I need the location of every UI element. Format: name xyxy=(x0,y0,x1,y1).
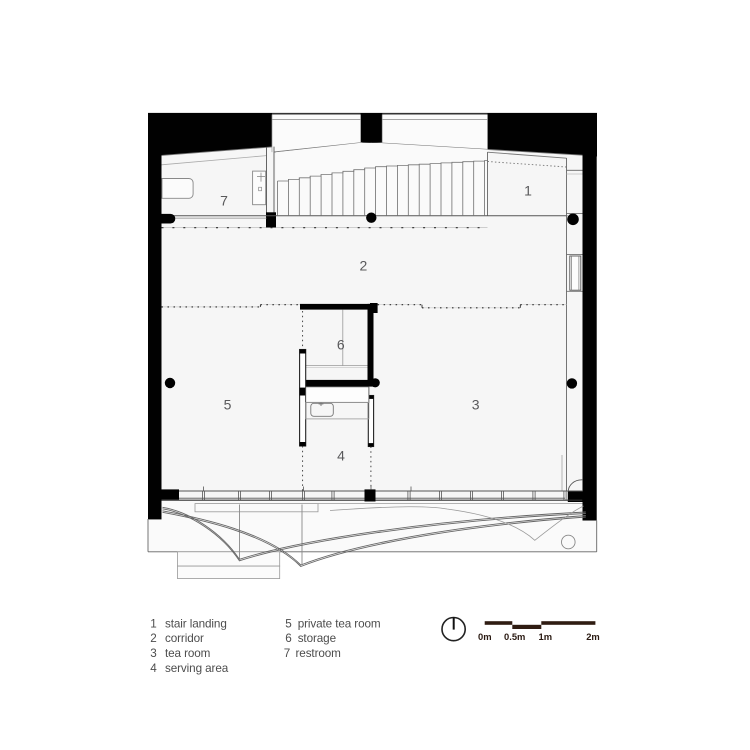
svg-text:4: 4 xyxy=(150,662,157,675)
svg-text:7: 7 xyxy=(220,193,228,209)
svg-text:1m: 1m xyxy=(539,631,553,642)
svg-text:5: 5 xyxy=(224,396,232,412)
svg-text:tea room: tea room xyxy=(165,647,210,660)
svg-text:serving area: serving area xyxy=(165,662,229,675)
svg-text:restroom: restroom xyxy=(296,647,341,660)
svg-text:4: 4 xyxy=(337,447,345,463)
svg-text:3: 3 xyxy=(150,647,156,660)
svg-text:1: 1 xyxy=(524,182,532,198)
svg-text:2: 2 xyxy=(360,257,368,273)
svg-text:2: 2 xyxy=(150,632,156,645)
svg-text:corridor: corridor xyxy=(165,632,204,645)
svg-text:7: 7 xyxy=(284,647,290,660)
svg-text:1: 1 xyxy=(150,617,156,630)
svg-text:3: 3 xyxy=(472,396,480,412)
svg-text:6: 6 xyxy=(285,632,291,645)
svg-text:0m: 0m xyxy=(478,631,492,642)
svg-text:0.5m: 0.5m xyxy=(504,631,525,642)
svg-text:2m: 2m xyxy=(586,631,600,642)
svg-text:storage: storage xyxy=(298,632,336,645)
svg-text:6: 6 xyxy=(337,337,345,353)
svg-text:stair landing: stair landing xyxy=(165,617,227,630)
svg-text:private tea room: private tea room xyxy=(298,617,381,630)
svg-text:5: 5 xyxy=(285,617,292,630)
